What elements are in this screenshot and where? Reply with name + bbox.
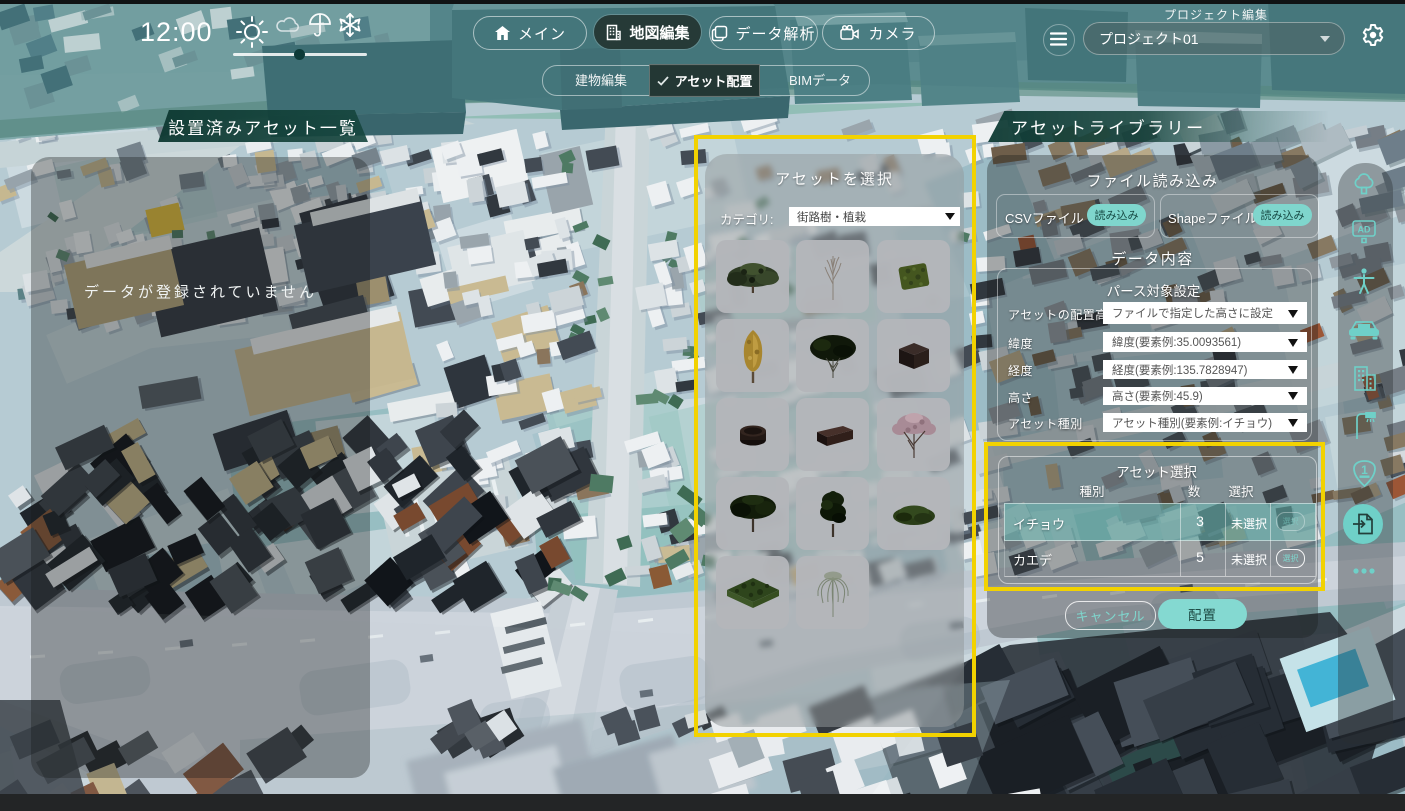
svg-text:1: 1 xyxy=(1361,463,1368,477)
svg-text:AD: AD xyxy=(1358,225,1371,235)
